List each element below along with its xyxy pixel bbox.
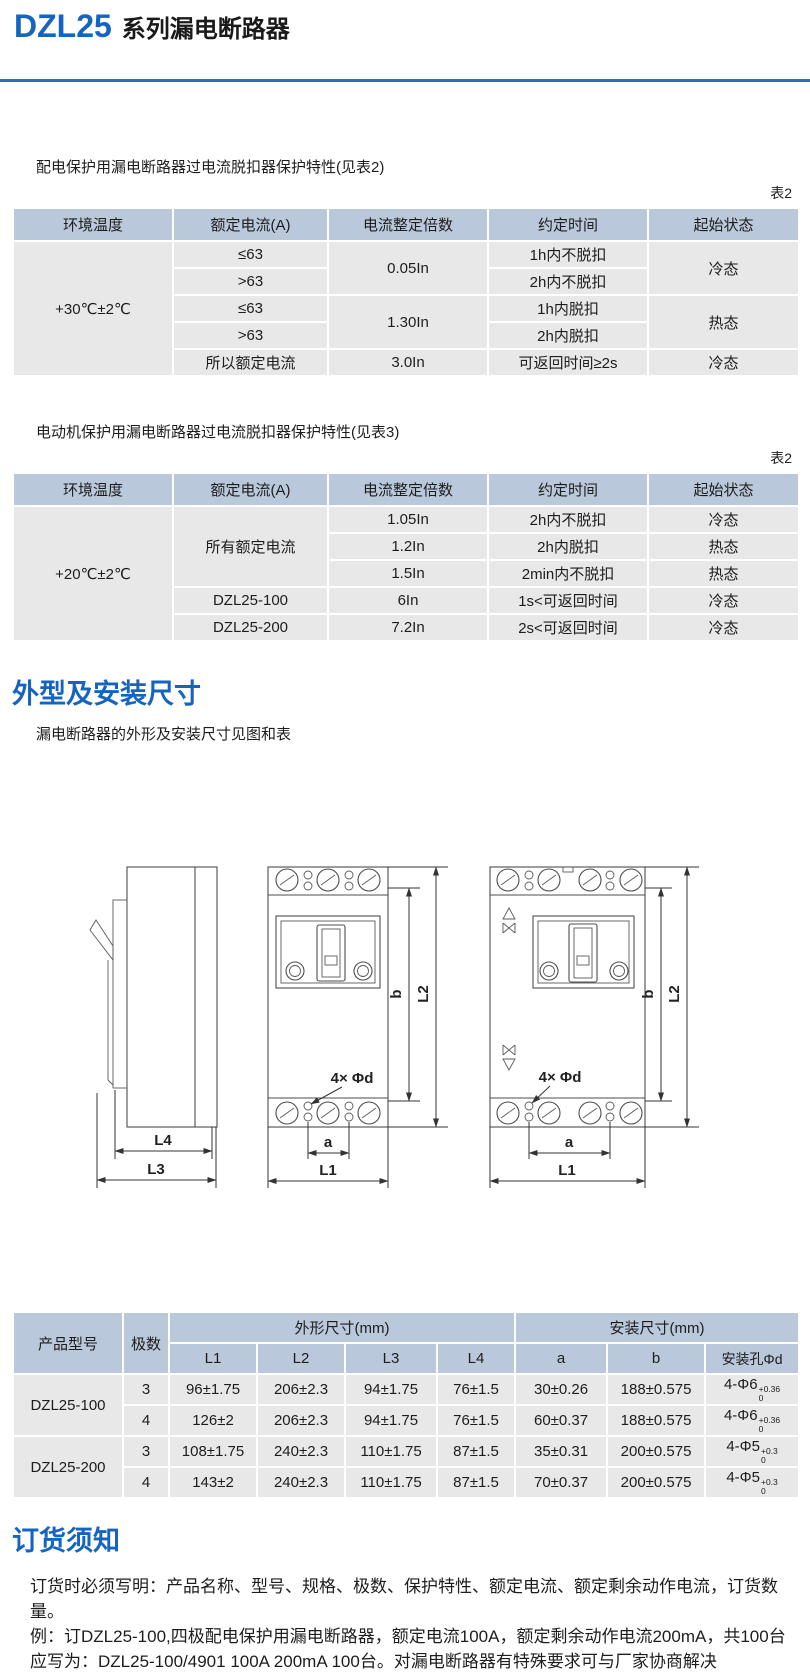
dim-row: 4 126±2 206±2.3 94±1.75 76±1.5 60±0.37 1… <box>13 1405 799 1436</box>
col-header-l4: L4 <box>437 1343 515 1374</box>
cell-l3: 110±1.75 <box>345 1467 437 1498</box>
cell-b: 188±0.575 <box>607 1405 705 1436</box>
cell-l2: 240±2.3 <box>257 1436 345 1467</box>
mounting-holes-label: 4× Φd <box>539 1069 582 1086</box>
dim-label-a: a <box>324 1134 333 1151</box>
dim-label-a: a <box>565 1134 574 1151</box>
col-header-time: 约定时间 <box>488 208 648 241</box>
dim-row: 4 143±2 240±2.3 110±1.75 87±1.5 70±0.37 … <box>13 1467 799 1498</box>
ordering-heading: 订货须知 <box>12 1519 810 1558</box>
cell-multiple: 1.5In <box>328 560 488 587</box>
outline-note: 漏电断路器的外形及安装尺寸见图和表 <box>36 723 810 744</box>
cell-state: 热态 <box>648 560 799 587</box>
cell-time: 2min内不脱扣 <box>488 560 648 587</box>
col-header-multiple: 电流整定倍数 <box>328 208 488 241</box>
cell-time: 2s<可返回时间 <box>488 614 648 641</box>
dim-label-l1: L1 <box>558 1162 576 1179</box>
col-header-state: 起始状态 <box>648 208 799 241</box>
outline-heading: 外型及安装尺寸 <box>12 672 810 711</box>
cell-l1: 108±1.75 <box>169 1436 257 1467</box>
dim-header-row: 产品型号 极数 外形尺寸(mm) 安装尺寸(mm) <box>13 1312 799 1343</box>
cell-multiple: 7.2In <box>328 614 488 641</box>
table1-label: 表2 <box>0 183 792 203</box>
cell-hole: 4-Φ5+0.30 <box>705 1467 799 1498</box>
cell-a: 60±0.37 <box>515 1405 607 1436</box>
cell-l1: 96±1.75 <box>169 1374 257 1405</box>
cell-ambient: +30℃±2℃ <box>13 241 173 376</box>
title-model: DZL25 <box>14 8 112 45</box>
dim-label-l4: L4 <box>154 1132 172 1149</box>
table1-intro: 配电保护用漏电断路器过电流脱扣器保护特性(见表2) <box>36 156 810 177</box>
cell-state: 冷态 <box>648 614 799 641</box>
drawing-front-4pole: 4× Φd b L2 a L1 <box>490 867 699 1188</box>
cell-a: 30±0.26 <box>515 1374 607 1405</box>
col-header-l1: L1 <box>169 1343 257 1374</box>
cell-multiple: 1.2In <box>328 533 488 560</box>
cell-state: 冷态 <box>648 349 799 376</box>
dim-label-l2: L2 <box>415 985 432 1003</box>
ordering-paragraph: 订货时必须写明：产品名称、型号、规格、极数、保护特性、额定电流、额定剩余动作电流… <box>30 1574 790 1674</box>
cell-model: DZL25-200 <box>13 1436 123 1498</box>
cell-hole: 4-Φ6+0.360 <box>705 1405 799 1436</box>
cell-poles: 3 <box>123 1436 169 1467</box>
cell-l4: 87±1.5 <box>437 1436 515 1467</box>
cell-current: DZL25-200 <box>173 614 328 641</box>
cell-l1: 126±2 <box>169 1405 257 1436</box>
dim-label-l1: L1 <box>319 1162 337 1179</box>
dim-row: DZL25-100 3 96±1.75 206±2.3 94±1.75 76±1… <box>13 1374 799 1405</box>
cell-state: 冷态 <box>648 241 799 295</box>
cell-b: 200±0.575 <box>607 1436 705 1467</box>
cell-l2: 206±2.3 <box>257 1405 345 1436</box>
dimension-table: 产品型号 极数 外形尺寸(mm) 安装尺寸(mm) L1 L2 L3 L4 a … <box>12 1311 800 1499</box>
col-header-state: 起始状态 <box>648 473 799 506</box>
cell-model: DZL25-100 <box>13 1374 123 1436</box>
cell-l3: 110±1.75 <box>345 1436 437 1467</box>
cell-time: 可返回时间≥2s <box>488 349 648 376</box>
col-header-product: 产品型号 <box>13 1312 123 1374</box>
dim-label-l3: L3 <box>147 1161 165 1178</box>
cell-hole: 4-Φ6+0.360 <box>705 1374 799 1405</box>
mounting-holes-label: 4× Φd <box>331 1070 374 1087</box>
table-header-row: 环境温度 额定电流(A) 电流整定倍数 约定时间 起始状态 <box>13 208 799 241</box>
cell-l4: 76±1.5 <box>437 1405 515 1436</box>
cell-poles: 4 <box>123 1405 169 1436</box>
cell-b: 200±0.575 <box>607 1467 705 1498</box>
cell-ambient: +20℃±2℃ <box>13 506 173 641</box>
ordering-line: 订货时必须写明：产品名称、型号、规格、极数、保护特性、额定电流、额定剩余动作电流… <box>30 1574 790 1599</box>
col-header-a: a <box>515 1343 607 1374</box>
col-header-temp: 环境温度 <box>13 208 173 241</box>
cell-time: 2h内不脱扣 <box>488 268 648 295</box>
cell-poles: 3 <box>123 1374 169 1405</box>
ordering-line: 应写为：DZL25-100/4901 100A 200mA 100台。对漏电断路… <box>30 1649 790 1674</box>
dim-row: DZL25-200 3 108±1.75 240±2.3 110±1.75 87… <box>13 1436 799 1467</box>
cell-l4: 87±1.5 <box>437 1467 515 1498</box>
cell-a: 70±0.37 <box>515 1467 607 1498</box>
cell-b: 188±0.575 <box>607 1374 705 1405</box>
col-header-b: b <box>607 1343 705 1374</box>
col-header-current: 额定电流(A) <box>173 208 328 241</box>
cell-time: 2h内脱扣 <box>488 322 648 349</box>
cell-state: 冷态 <box>648 587 799 614</box>
cell-current: DZL25-100 <box>173 587 328 614</box>
cell-current: >63 <box>173 268 328 295</box>
spec-table-distribution: 环境温度 额定电流(A) 电流整定倍数 约定时间 起始状态 +30℃±2℃ ≤6… <box>12 207 800 377</box>
ordering-line: 量。 <box>30 1599 790 1624</box>
dim-label-l2: L2 <box>666 985 683 1003</box>
cell-multiple: 1.05In <box>328 506 488 533</box>
cell-current: ≤63 <box>173 295 328 322</box>
ordering-line: 例：订DZL25-100,四极配电保护用漏电断路器，额定电流100A，额定剩余动… <box>30 1624 790 1649</box>
table-row: +20℃±2℃ 所有额定电流 1.05In 2h内不脱扣 冷态 <box>13 506 799 533</box>
col-group-outline: 外形尺寸(mm) <box>169 1312 515 1343</box>
cell-l3: 94±1.75 <box>345 1374 437 1405</box>
dim-label-b: b <box>640 989 657 998</box>
table-header-row: 环境温度 额定电流(A) 电流整定倍数 约定时间 起始状态 <box>13 473 799 506</box>
cell-multiple: 6In <box>328 587 488 614</box>
cell-current: 所有额定电流 <box>173 506 328 587</box>
col-header-hole: 安装孔Φd <box>705 1343 799 1374</box>
cell-poles: 4 <box>123 1467 169 1498</box>
cell-time: 1h内脱扣 <box>488 295 648 322</box>
cell-time: 2h内脱扣 <box>488 533 648 560</box>
drawing-side-view: L4 L3 <box>90 867 217 1188</box>
col-header-poles: 极数 <box>123 1312 169 1374</box>
title-series: 系列漏电断路器 <box>122 9 290 44</box>
table-row: +30℃±2℃ ≤63 0.05In 1h内不脱扣 冷态 <box>13 241 799 268</box>
cell-multiple: 1.30In <box>328 295 488 349</box>
cell-time: 1s<可返回时间 <box>488 587 648 614</box>
table2-label: 表2 <box>0 448 792 468</box>
blue-rule <box>0 79 810 82</box>
spec-table-motor: 环境温度 额定电流(A) 电流整定倍数 约定时间 起始状态 +20℃±2℃ 所有… <box>12 472 800 642</box>
cell-multiple: 0.05In <box>328 241 488 295</box>
col-header-temp: 环境温度 <box>13 473 173 506</box>
cell-l1: 143±2 <box>169 1467 257 1498</box>
col-header-l2: L2 <box>257 1343 345 1374</box>
col-header-multiple: 电流整定倍数 <box>328 473 488 506</box>
cell-time: 1h内不脱扣 <box>488 241 648 268</box>
table2-intro: 电动机保护用漏电断路器过电流脱扣器保护特性(见表3) <box>36 421 810 442</box>
cell-state: 热态 <box>648 295 799 349</box>
col-header-time: 约定时间 <box>488 473 648 506</box>
cell-current: >63 <box>173 322 328 349</box>
cell-current: ≤63 <box>173 241 328 268</box>
col-header-current: 额定电流(A) <box>173 473 328 506</box>
cell-state: 热态 <box>648 533 799 560</box>
cell-a: 35±0.31 <box>515 1436 607 1467</box>
cell-hole: 4-Φ5+0.30 <box>705 1436 799 1467</box>
catalog-page: { "header": { "model": "DZL25", "series"… <box>0 8 810 1666</box>
cell-l4: 76±1.5 <box>437 1374 515 1405</box>
page-title: DZL25 系列漏电断路器 <box>14 8 810 45</box>
drawing-front-3pole: 4× Φd b L2 a L1 <box>268 867 448 1188</box>
dim-label-b: b <box>388 989 405 998</box>
cell-multiple: 3.0In <box>328 349 488 376</box>
cell-time: 2h内不脱扣 <box>488 506 648 533</box>
cell-current: 所以额定电流 <box>173 349 328 376</box>
col-header-l3: L3 <box>345 1343 437 1374</box>
cell-l3: 94±1.75 <box>345 1405 437 1436</box>
cell-l2: 240±2.3 <box>257 1467 345 1498</box>
cell-state: 冷态 <box>648 506 799 533</box>
outline-drawing: L4 L3 4× Φd b <box>12 788 798 1203</box>
cell-l2: 206±2.3 <box>257 1374 345 1405</box>
col-group-mount: 安装尺寸(mm) <box>515 1312 799 1343</box>
